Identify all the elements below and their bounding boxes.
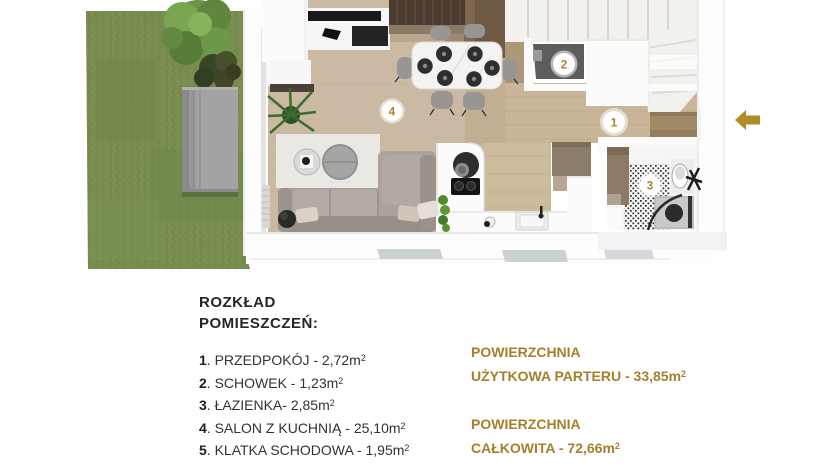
svg-text:4: 4 xyxy=(389,107,396,119)
svg-text:1: 1 xyxy=(611,116,618,130)
svg-text:2: 2 xyxy=(561,58,568,72)
svg-text:3: 3 xyxy=(647,181,653,193)
